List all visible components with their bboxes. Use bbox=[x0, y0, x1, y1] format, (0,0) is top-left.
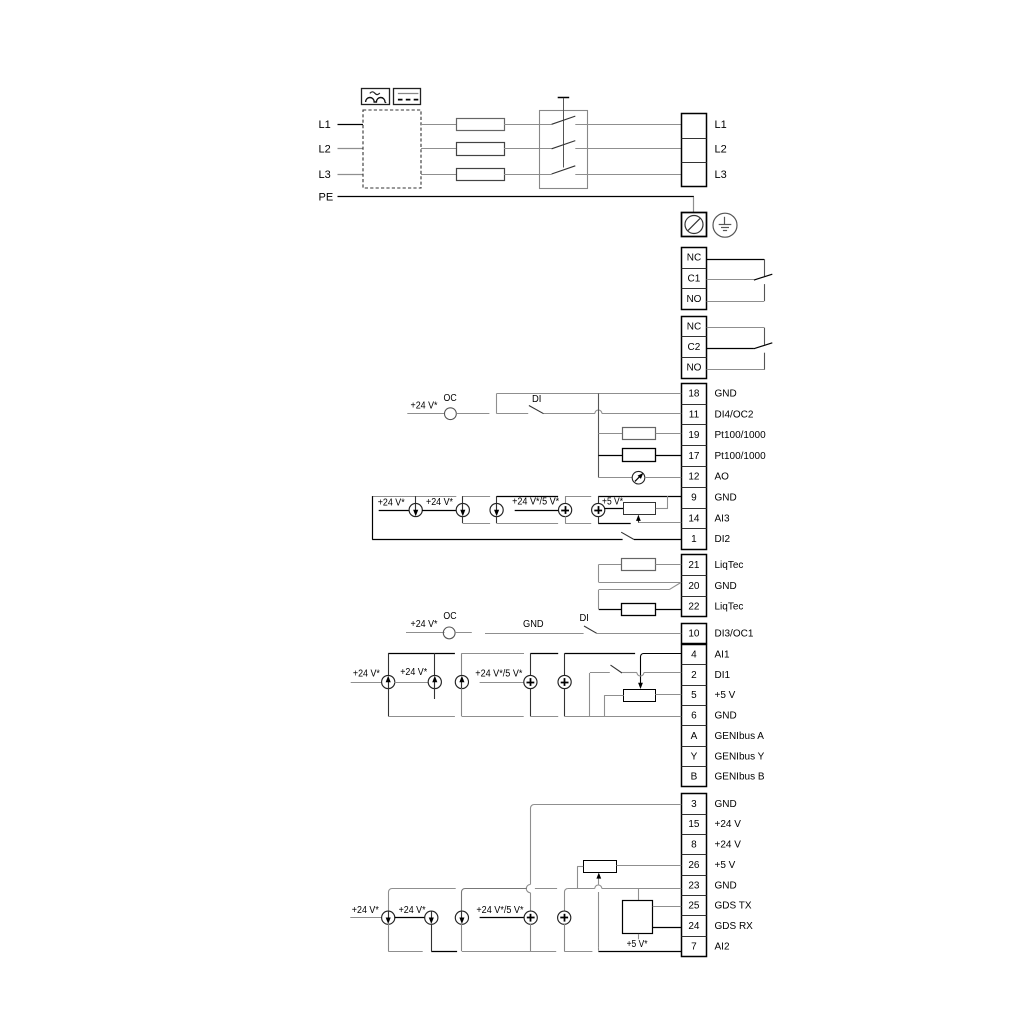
svg-text:22: 22 bbox=[688, 602, 700, 613]
svg-text:GND: GND bbox=[523, 619, 544, 630]
svg-text:C2: C2 bbox=[688, 342, 701, 353]
svg-text:DI4/OC2: DI4/OC2 bbox=[715, 409, 754, 420]
svg-text:+24 V*/5 V*: +24 V*/5 V* bbox=[476, 905, 523, 916]
svg-text:11: 11 bbox=[689, 409, 700, 420]
svg-text:DI3/OC1: DI3/OC1 bbox=[715, 629, 754, 640]
svg-text:+24 V*: +24 V* bbox=[353, 669, 380, 680]
svg-text:7: 7 bbox=[691, 941, 697, 952]
svg-text:AI1: AI1 bbox=[715, 650, 730, 661]
svg-text:+24 V*: +24 V* bbox=[426, 497, 453, 508]
svg-text:18: 18 bbox=[688, 389, 700, 400]
svg-text:4: 4 bbox=[691, 650, 697, 661]
svg-text:GND: GND bbox=[715, 581, 737, 592]
svg-text:GND: GND bbox=[715, 711, 737, 722]
svg-text:+24 V*: +24 V* bbox=[411, 401, 438, 412]
svg-text:L2: L2 bbox=[319, 144, 331, 156]
svg-text:24: 24 bbox=[688, 921, 700, 932]
svg-text:15: 15 bbox=[688, 819, 700, 830]
svg-text:DI2: DI2 bbox=[715, 534, 731, 545]
svg-text:26: 26 bbox=[688, 860, 700, 871]
svg-text:GENIbus B: GENIbus B bbox=[715, 772, 765, 783]
svg-text:+5 V*: +5 V* bbox=[602, 496, 623, 507]
svg-text:21: 21 bbox=[688, 560, 700, 571]
svg-text:6: 6 bbox=[691, 711, 697, 722]
svg-text:23: 23 bbox=[688, 880, 700, 891]
svg-text:GENIbus Y: GENIbus Y bbox=[715, 751, 765, 762]
svg-text:LiqTec: LiqTec bbox=[715, 560, 744, 571]
svg-text:L3: L3 bbox=[715, 169, 727, 181]
svg-text:+24 V*: +24 V* bbox=[399, 905, 426, 916]
svg-text:GND: GND bbox=[715, 799, 737, 810]
svg-text:+24 V*: +24 V* bbox=[400, 667, 427, 678]
svg-text:+24 V*/5 V*: +24 V*/5 V* bbox=[512, 497, 559, 508]
svg-text:GENIbus A: GENIbus A bbox=[715, 731, 765, 742]
svg-text:1: 1 bbox=[691, 534, 697, 545]
svg-text:+24 V*: +24 V* bbox=[378, 498, 405, 509]
svg-text:B: B bbox=[691, 772, 698, 783]
svg-text:Pt100/1000: Pt100/1000 bbox=[715, 451, 767, 462]
svg-text:17: 17 bbox=[688, 451, 700, 462]
svg-text:DI: DI bbox=[532, 394, 541, 405]
svg-text:12: 12 bbox=[688, 472, 700, 483]
svg-text:AI2: AI2 bbox=[715, 941, 730, 952]
svg-text:Pt100/1000: Pt100/1000 bbox=[715, 430, 767, 441]
svg-text:NC: NC bbox=[687, 321, 701, 332]
svg-text:+5 V: +5 V bbox=[715, 690, 736, 701]
svg-text:L1: L1 bbox=[715, 119, 727, 131]
svg-text:8: 8 bbox=[691, 840, 697, 851]
svg-text:20: 20 bbox=[688, 581, 700, 592]
svg-text:+24 V: +24 V bbox=[715, 819, 742, 830]
svg-text:DI1: DI1 bbox=[715, 670, 731, 681]
svg-text:L1: L1 bbox=[319, 119, 331, 131]
svg-text:2: 2 bbox=[691, 670, 697, 681]
svg-text:19: 19 bbox=[688, 430, 700, 441]
svg-text:NC: NC bbox=[687, 253, 701, 264]
svg-text:L3: L3 bbox=[319, 169, 331, 181]
svg-text:GND: GND bbox=[715, 880, 737, 891]
svg-text:OC: OC bbox=[444, 393, 457, 404]
svg-text:GDS RX: GDS RX bbox=[715, 921, 754, 932]
svg-text:GND: GND bbox=[715, 389, 737, 400]
svg-text:9: 9 bbox=[691, 493, 697, 504]
svg-text:+24 V: +24 V bbox=[715, 840, 742, 851]
svg-text:AO: AO bbox=[715, 472, 730, 483]
svg-text:25: 25 bbox=[688, 901, 700, 912]
svg-text:NO: NO bbox=[686, 363, 701, 374]
svg-text:C1: C1 bbox=[688, 273, 701, 284]
svg-text:Y: Y bbox=[691, 751, 698, 762]
svg-text:A: A bbox=[691, 731, 698, 742]
svg-text:+24 V*: +24 V* bbox=[411, 619, 438, 630]
svg-text:GDS TX: GDS TX bbox=[715, 901, 752, 912]
svg-text:PE: PE bbox=[319, 192, 334, 204]
svg-text:GND: GND bbox=[715, 493, 737, 504]
svg-text:14: 14 bbox=[688, 513, 700, 524]
svg-text:5: 5 bbox=[691, 690, 697, 701]
svg-text:3: 3 bbox=[691, 799, 697, 810]
svg-text:L2: L2 bbox=[715, 144, 727, 156]
svg-text:DI: DI bbox=[580, 613, 589, 624]
svg-text:+24 V*/5 V*: +24 V*/5 V* bbox=[475, 669, 522, 680]
svg-text:AI3: AI3 bbox=[715, 513, 730, 524]
svg-text:LiqTec: LiqTec bbox=[715, 602, 744, 613]
svg-text:NO: NO bbox=[686, 294, 701, 305]
svg-text:+5 V*: +5 V* bbox=[627, 939, 648, 950]
svg-text:+24 V*: +24 V* bbox=[352, 905, 379, 916]
svg-text:10: 10 bbox=[688, 629, 700, 640]
svg-text:OC: OC bbox=[443, 611, 456, 622]
svg-text:+5 V: +5 V bbox=[715, 860, 736, 871]
